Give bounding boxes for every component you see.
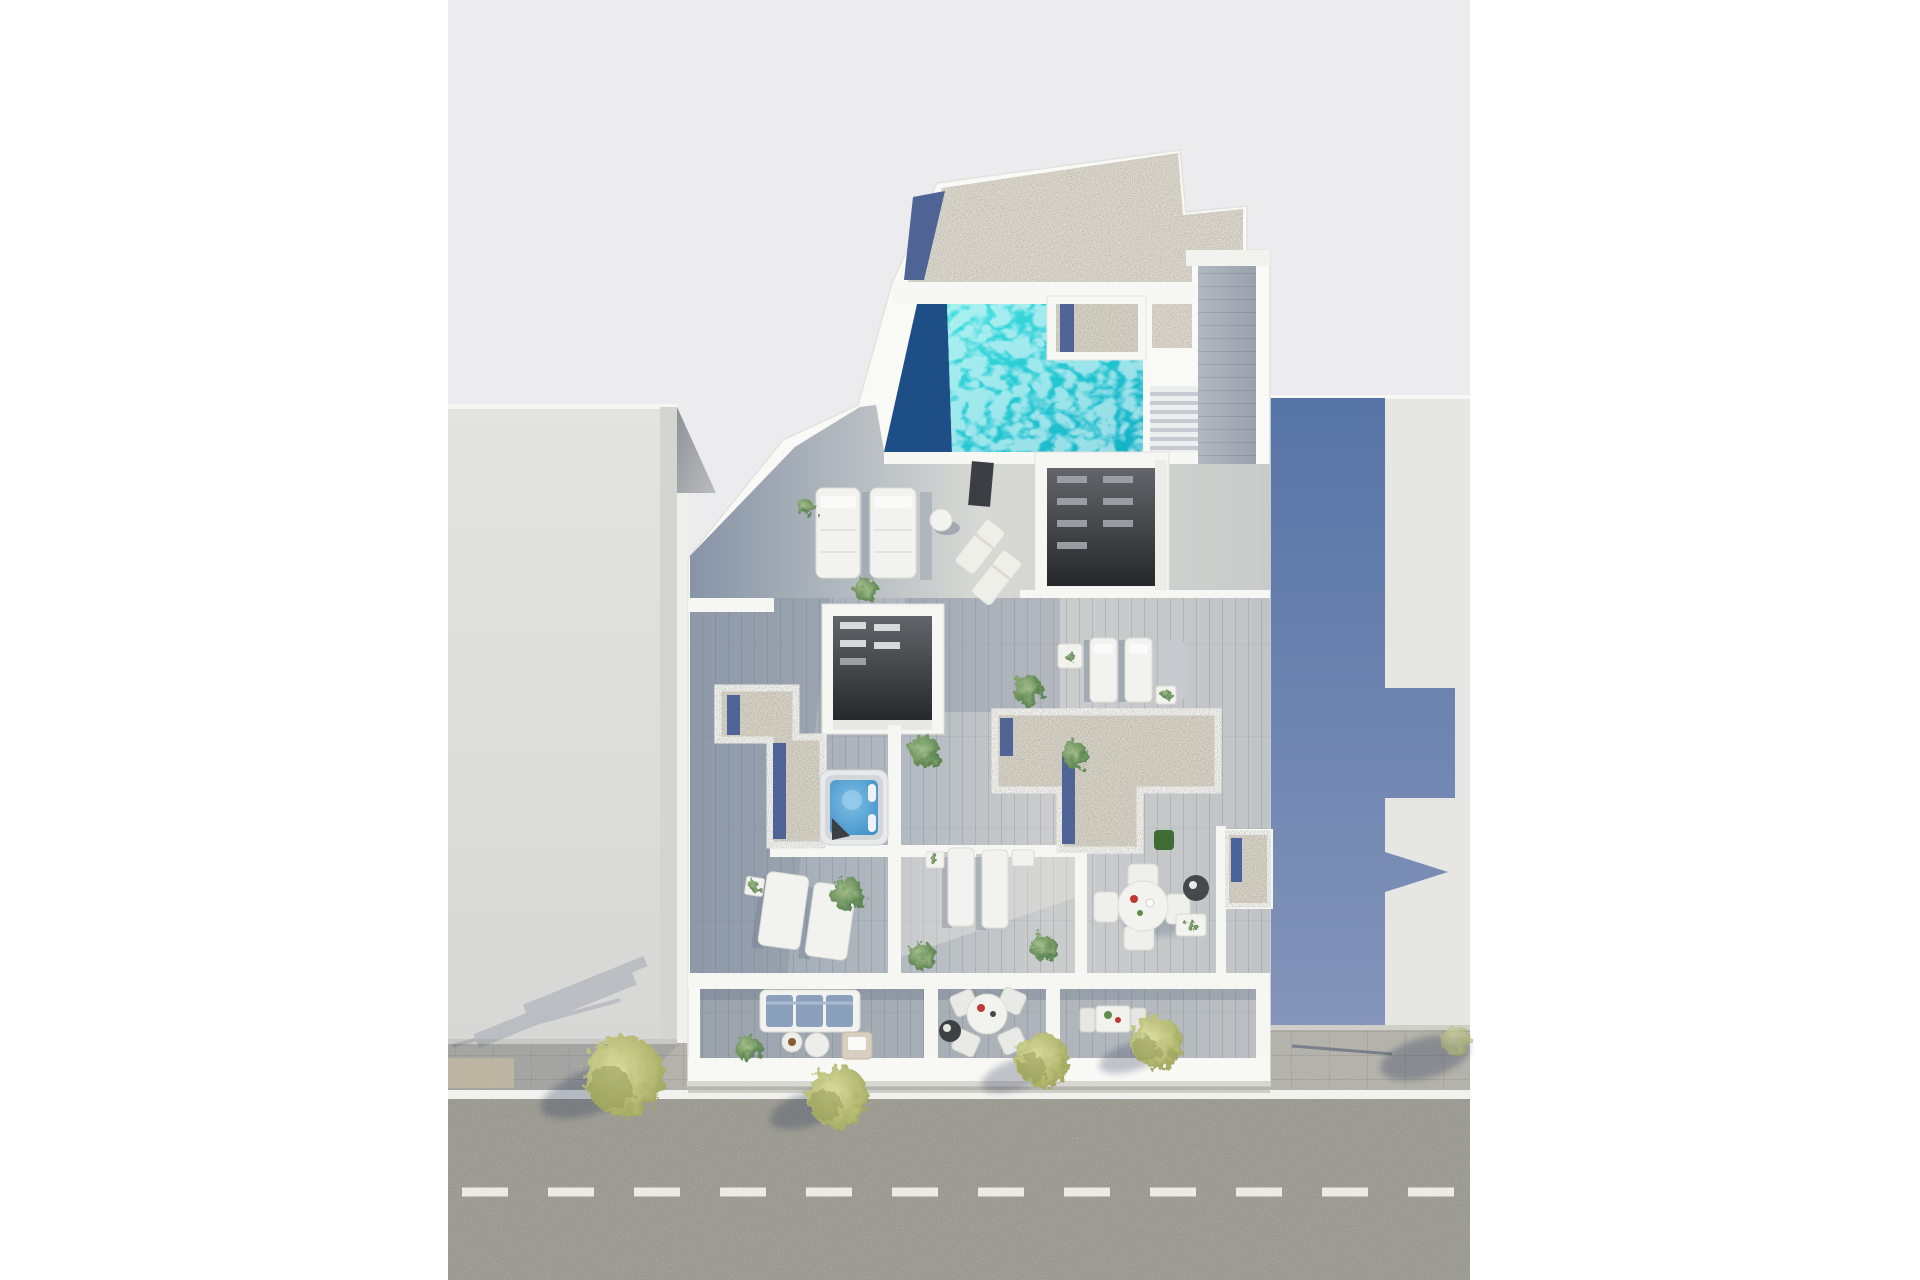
party-wall-sliver: [677, 493, 688, 1043]
lounger-pillow-2: [874, 496, 912, 508]
road-texture-light: [448, 1099, 1470, 1280]
balcony-plant-left: [735, 1035, 761, 1061]
plate-green: [1137, 910, 1143, 916]
dark-mat: [968, 461, 994, 507]
hot-tub-seat-1: [868, 784, 876, 802]
lounger-pillow-1: [820, 496, 856, 508]
round-side-table: [930, 509, 952, 531]
neighbor-right-base-shadow: [1270, 1025, 1470, 1030]
plant-left-terrace: [831, 877, 865, 911]
sofa-cushion-2: [796, 995, 823, 1027]
plant-centre-1: [909, 736, 941, 768]
pebble-notch-texture: [1060, 304, 1074, 352]
corridor-planks: [1198, 266, 1256, 480]
plant-upper-deck: [854, 578, 878, 602]
skylight-right-ledge: [1155, 460, 1167, 590]
plant-middle-1: [908, 942, 936, 970]
neighbor-left-lit-edge: [448, 404, 677, 409]
balcony-round-table: [967, 994, 1007, 1034]
wall-divider-right: [1075, 845, 1087, 987]
balcony-parapet-shade: [688, 1081, 1270, 1086]
render-canvas: [0, 0, 1920, 1280]
building-base-shadow: [688, 1086, 1270, 1093]
neighbor-building-left: [448, 404, 716, 1048]
bistro-table: [1096, 1006, 1130, 1032]
neighbor-left-roof: [448, 407, 677, 1043]
plant-middle-2: [1031, 935, 1057, 961]
potted-plant-small: [797, 499, 815, 517]
pool-top-coping: [893, 282, 1195, 304]
pool-stairs: [1150, 386, 1198, 452]
hot-tub-seat-2: [868, 814, 876, 832]
neighbor-left-edge-shade: [660, 407, 677, 1043]
plant-on-gravel-T: [1062, 742, 1088, 768]
scene: [0, 0, 1920, 1280]
neighbor-building-right: [1270, 395, 1475, 1089]
skylight-left-opening: [833, 616, 932, 722]
boxwood-planter: [1154, 830, 1174, 850]
plate-white: [1146, 899, 1154, 907]
middle-side-table-2: [1012, 850, 1034, 866]
balcony-dark-table: [939, 1020, 961, 1042]
skylight-left-ledge: [833, 720, 932, 730]
balcony-back-wall: [688, 973, 1270, 989]
wall-left-terrace: [688, 598, 774, 612]
coffee-table-2: [805, 1033, 829, 1057]
sofa-cushion-3: [826, 995, 853, 1027]
skylight-right: [1035, 452, 1169, 598]
hot-tub-bubbles: [842, 790, 862, 810]
plate-red: [1130, 895, 1138, 903]
balcony-strip: [688, 973, 1270, 1086]
corridor-landing: [1186, 250, 1270, 266]
lounger-shadow-2: [920, 492, 932, 580]
plant-near-lounger-row: [1013, 675, 1043, 705]
dark-round-table: [1183, 875, 1209, 901]
pebble-strip-right-patch: [1231, 838, 1242, 882]
sofa-cushion-1: [766, 995, 793, 1027]
skylight-left: [822, 604, 944, 734]
bistro-chair-left: [1080, 1008, 1095, 1032]
dining-table-round: [1118, 881, 1168, 931]
hot-tub: [820, 770, 888, 845]
middle-lounger-1: [948, 848, 974, 926]
middle-lounger-2: [982, 850, 1008, 928]
